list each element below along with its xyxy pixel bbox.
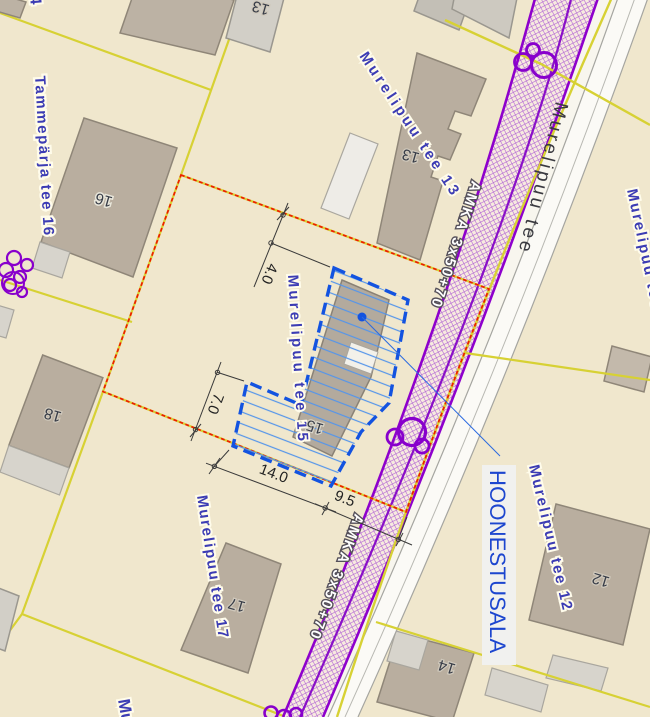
svg-text:HOONESTUSALA: HOONESTUSALA: [485, 470, 510, 653]
svg-text:Mu: Mu: [114, 697, 137, 717]
